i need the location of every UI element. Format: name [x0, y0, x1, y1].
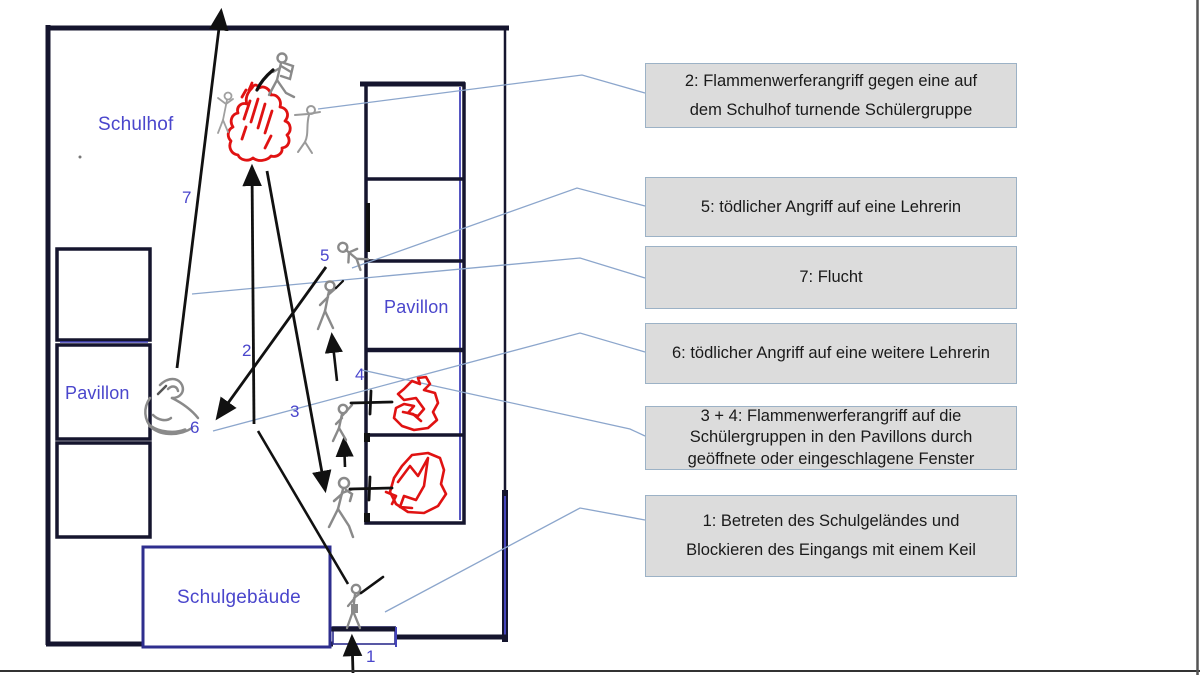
area-label-pavillon-right: Pavillon	[384, 297, 449, 318]
flamethrower-attacker-yard-icon	[257, 54, 294, 98]
school-attack-diagram: Schulhof Pavillon Pavillon Schulgebäude …	[0, 0, 1200, 675]
callout-step-2: 2: Flammenwerferangriff gegen eine auf d…	[645, 63, 1017, 128]
area-label-pavillon-left: Pavillon	[65, 383, 130, 404]
callout-step-3-4: 3 + 4: Flammenwerferangriff auf die Schü…	[645, 406, 1017, 470]
attacker-walking-icon	[318, 281, 343, 329]
callout-step-1: 1: Betreten des Schulgeländes und Blocki…	[645, 495, 1017, 577]
fleeing-pupil-right-icon	[295, 106, 320, 153]
callout-step-7: 7: Flucht	[645, 246, 1017, 309]
callout-step-6: 6: tödlicher Angriff auf eine weitere Le…	[645, 323, 1017, 384]
step-marker-1: 1	[366, 647, 375, 667]
entrance	[331, 627, 396, 647]
step-marker-3: 3	[290, 402, 299, 422]
attacker-window-5-icon	[334, 238, 369, 271]
map-speck	[79, 156, 82, 159]
attacker-entrance-icon	[347, 577, 383, 628]
step-marker-5: 5	[320, 246, 329, 266]
plan-graphics	[0, 0, 1200, 675]
step-marker-6: 6	[190, 418, 199, 438]
area-label-schulgebaeude: Schulgebäude	[177, 587, 301, 609]
callout-step-5: 5: tödlicher Angriff auf eine Lehrerin	[645, 177, 1017, 237]
area-label-schulhof: Schulhof	[98, 114, 174, 136]
flame-schulhof-icon	[228, 83, 290, 160]
step-marker-4: 4	[355, 365, 364, 385]
step-marker-7: 7	[182, 188, 191, 208]
step-marker-2: 2	[242, 341, 251, 361]
